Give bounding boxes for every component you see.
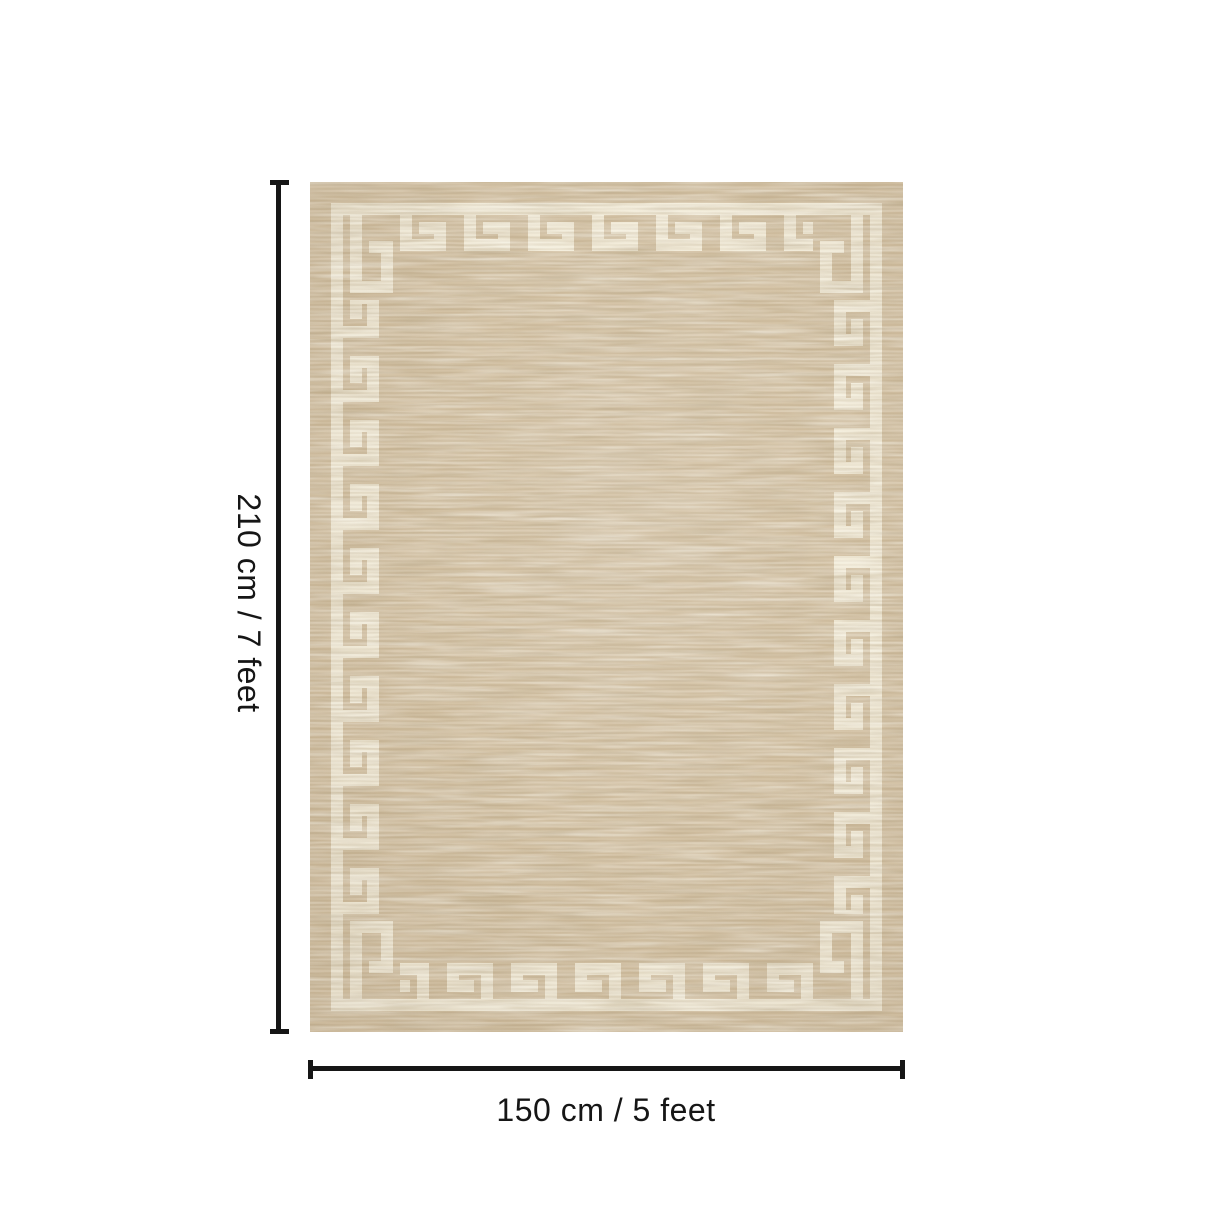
rug-image xyxy=(310,182,903,1032)
height-dimension-cap-bottom xyxy=(270,1029,289,1034)
height-dimension-label: 210 cm / 7 feet xyxy=(233,493,265,712)
rug-texture-dark xyxy=(310,182,903,1032)
width-dimension-cap-left xyxy=(308,1060,313,1079)
width-dimension-cap-right xyxy=(900,1060,905,1079)
height-dimension-cap-top xyxy=(270,180,289,185)
width-dimension-label: 150 cm / 5 feet xyxy=(496,1094,715,1126)
height-dimension-line xyxy=(276,182,281,1032)
rug-graphic xyxy=(310,182,903,1032)
product-dimension-diagram: 210 cm / 7 feet 150 cm / 5 feet xyxy=(0,0,1214,1214)
width-dimension-line xyxy=(310,1066,903,1071)
